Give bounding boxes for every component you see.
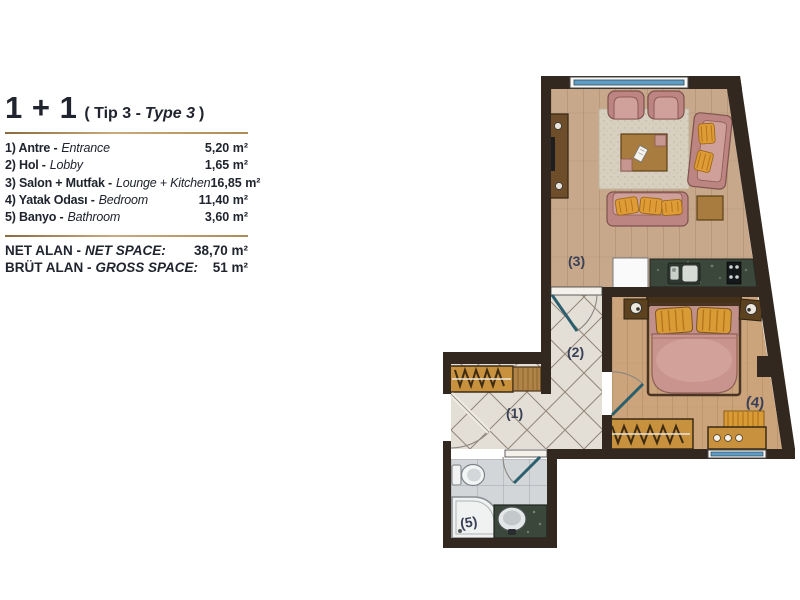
wall-hall-bedroom-lower <box>602 415 612 449</box>
sofa-bottom <box>607 192 688 226</box>
nightstand-left <box>624 299 648 319</box>
subtitle-suffix: ) <box>199 105 204 123</box>
room-name-en: Lobby <box>50 158 83 172</box>
room-area: 11,40 m² <box>199 192 248 209</box>
wall-entrance-top <box>443 352 551 364</box>
entrance-furniture <box>449 366 541 392</box>
sofa-right <box>687 112 733 190</box>
room-name-en: Entrance <box>61 141 109 155</box>
gross-area-row: BRÜT ALAN -GROSS SPACE: 51 m² <box>5 259 248 276</box>
bedroom-window <box>708 450 766 458</box>
nightstand-right <box>739 299 763 321</box>
room-label-4: (4) <box>745 393 765 412</box>
net-area-row: NET ALAN -NET SPACE: 38,70 m² <box>5 242 248 259</box>
room-name-tr: 4) Yatak Odası - <box>5 193 95 207</box>
gold-divider-top <box>5 132 248 134</box>
bed <box>646 296 742 395</box>
legend-panel: 1 + 1 ( Tip 3 - Type 3 ) 1) Antre -Entra… <box>5 90 248 276</box>
gross-area-label-en: GROSS SPACE: <box>95 260 198 275</box>
wall-left-lower <box>443 441 451 548</box>
armchair-right <box>648 91 684 119</box>
room-name-en: Bedroom <box>99 193 148 207</box>
room-label-1: (1) <box>506 405 523 421</box>
room-name-tr: 5) Banyo - <box>5 210 63 224</box>
wall-bath-bottom <box>443 538 557 548</box>
fridge <box>613 258 648 290</box>
room-label-3: (3) <box>568 253 585 269</box>
wall-column <box>757 356 781 377</box>
coffee-table <box>621 134 667 171</box>
room-name-tr: 2) Hol - <box>5 158 46 172</box>
wardrobe <box>606 419 693 449</box>
armchair-left <box>608 91 644 119</box>
room-label-5: (5) <box>459 513 478 531</box>
room-list: 1) Antre -Entrance 5,20 m² 2) Hol -Lobby… <box>5 140 248 226</box>
subtitle-type: Type 3 <box>145 105 195 123</box>
room-name-en: Lounge + Kitchen <box>116 176 210 190</box>
room-area: 5,20 m² <box>205 140 248 157</box>
floorplan-page: (3) (2) (1) (4) (5) 1 + 1 ( Tip 3 - Type… <box>0 0 800 600</box>
coat-closet <box>449 366 513 392</box>
vanity-sink <box>494 505 547 538</box>
legend-title-row: 1 + 1 ( Tip 3 - Type 3 ) <box>5 90 248 126</box>
wall-kitchen-bedroom <box>602 287 764 297</box>
net-area-label-en: NET SPACE: <box>85 243 166 258</box>
room-row-bedroom: 4) Yatak Odası -Bedroom 11,40 m² <box>5 192 248 209</box>
wall-bath-right <box>547 449 557 548</box>
room-area: 16,85 m² <box>210 175 260 192</box>
room-row-lounge-kitchen: 3) Salon + Mutfak -Lounge + Kitchen 16,8… <box>5 175 248 192</box>
room-name-en: Bathroom <box>67 210 120 224</box>
room-name-tr: 1) Antre - <box>5 141 57 155</box>
subtitle-prefix: ( Tip 3 - <box>84 105 141 123</box>
net-area-value: 38,70 m² <box>194 242 248 259</box>
net-area-label-tr: NET ALAN - <box>5 243 81 258</box>
wall-hall-bedroom-upper <box>602 287 612 372</box>
gross-area-label-tr: BRÜT ALAN - <box>5 260 91 275</box>
plan-type-title: 1 + 1 <box>5 90 77 126</box>
room-area: 1,65 m² <box>205 157 248 174</box>
side-table <box>697 196 723 220</box>
gold-divider-bottom <box>5 235 248 237</box>
kitchen-sink <box>668 263 700 284</box>
entry-shelf <box>513 367 541 391</box>
room-label-2: (2) <box>567 344 584 360</box>
room-row-bathroom: 5) Banyo -Bathroom 3,60 m² <box>5 209 248 226</box>
stove <box>727 262 741 284</box>
room-row-lobby: 2) Hol -Lobby 1,65 m² <box>5 157 248 174</box>
gross-area-value: 51 m² <box>213 259 248 276</box>
room-name-tr: 3) Salon + Mutfak - <box>5 176 112 190</box>
toilet <box>452 465 485 486</box>
kitchen <box>613 258 757 290</box>
plan-subtitle: ( Tip 3 - Type 3 ) <box>84 105 204 123</box>
room-row-entrance: 1) Antre -Entrance 5,20 m² <box>5 140 248 157</box>
wall-living-left <box>541 76 551 394</box>
room-area: 3,60 m² <box>205 209 248 226</box>
living-room-window <box>570 77 688 88</box>
